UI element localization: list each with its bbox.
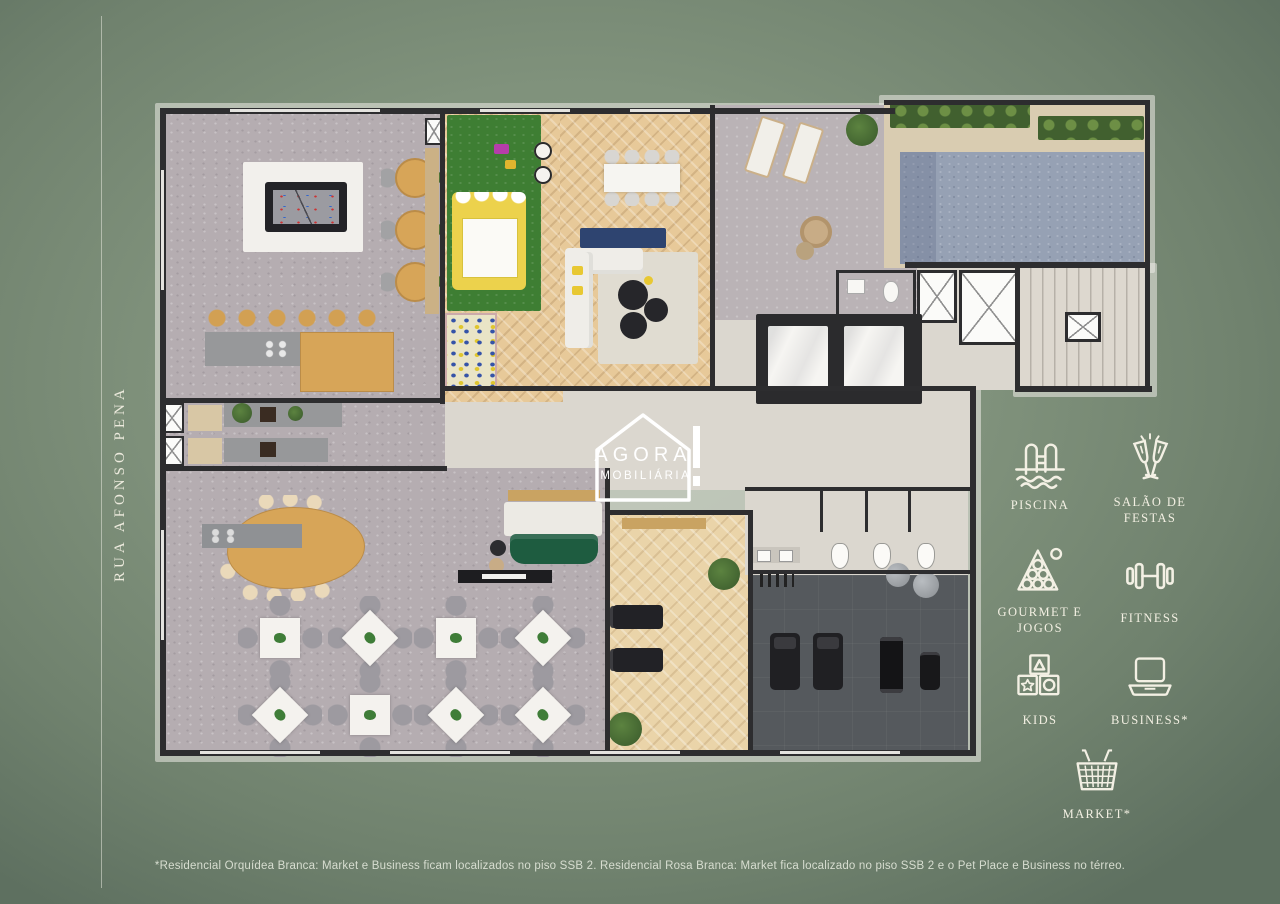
party-table-set bbox=[414, 596, 498, 680]
pillow bbox=[572, 266, 583, 275]
exercise-bike bbox=[920, 652, 940, 690]
amenity-label: GOURMET E JOGOS bbox=[988, 604, 1092, 637]
wall bbox=[608, 510, 753, 515]
weight-rack bbox=[760, 572, 794, 587]
wall bbox=[884, 100, 1150, 105]
disclaimer-text: *Residencial Orquídea Branca: Market e B… bbox=[0, 860, 1280, 872]
laptop-icon bbox=[1122, 650, 1178, 706]
basket-icon bbox=[1069, 744, 1125, 800]
burners bbox=[208, 529, 238, 543]
exercise-ball bbox=[913, 572, 939, 598]
amenity-label: KIDS bbox=[988, 712, 1092, 728]
media-console bbox=[580, 228, 666, 248]
pillow bbox=[572, 286, 583, 295]
amenity-label: PISCINA bbox=[988, 497, 1092, 513]
support-counter bbox=[224, 438, 328, 462]
party-table bbox=[252, 687, 309, 744]
wc-sink bbox=[847, 279, 865, 294]
bar-table bbox=[300, 332, 394, 392]
window bbox=[161, 530, 164, 640]
plant bbox=[232, 403, 252, 423]
amenity-piscina: PISCINA bbox=[988, 435, 1092, 513]
kids-playhouse bbox=[452, 192, 526, 290]
stall-wall bbox=[820, 490, 823, 532]
wall bbox=[1015, 386, 1152, 392]
party-table bbox=[342, 610, 399, 667]
deck-pouf bbox=[796, 242, 814, 260]
amenity-fitness: FITNESS bbox=[1098, 548, 1202, 626]
massage-chair bbox=[613, 648, 663, 672]
street-name-label: RUA AFONSO PENA bbox=[112, 282, 129, 582]
party-table-set bbox=[238, 673, 322, 757]
billiards-felt bbox=[273, 190, 339, 224]
wc-room bbox=[836, 270, 916, 318]
cooktop bbox=[263, 340, 289, 358]
pouf bbox=[620, 312, 647, 339]
pool-shallow-ledge bbox=[900, 152, 936, 264]
treadmill bbox=[770, 633, 800, 690]
party-table-set bbox=[501, 673, 585, 757]
toy bbox=[505, 160, 516, 169]
salon-plant bbox=[608, 712, 642, 746]
amenity-market: MARKET* bbox=[1045, 744, 1149, 822]
elevator-cab bbox=[768, 326, 828, 390]
window bbox=[780, 751, 900, 754]
window bbox=[590, 751, 680, 754]
amenity-label: FITNESS bbox=[1098, 610, 1202, 626]
bar-counter bbox=[205, 332, 300, 366]
stairs-shaft bbox=[1065, 312, 1101, 342]
amenity-label: BUSINESS* bbox=[1098, 712, 1202, 728]
weight-machine bbox=[880, 637, 903, 693]
pool-icon bbox=[1012, 435, 1068, 491]
toy-blocks-icon bbox=[1012, 650, 1068, 706]
billiards-icon bbox=[1012, 542, 1068, 598]
sink bbox=[757, 550, 771, 562]
wall bbox=[443, 386, 975, 391]
stall-wall bbox=[865, 490, 868, 532]
toy bbox=[644, 276, 653, 285]
party-table-set bbox=[238, 596, 322, 680]
billiards-table bbox=[265, 182, 347, 232]
swimming-pool bbox=[900, 152, 1144, 264]
amenity-salao-de-festas: SALÃO DE FESTAS bbox=[1098, 432, 1202, 527]
wall bbox=[745, 487, 970, 491]
bin bbox=[260, 442, 276, 457]
salon-bench bbox=[622, 518, 706, 529]
party-table-set bbox=[328, 673, 412, 757]
wc-toilet bbox=[883, 281, 899, 303]
kids-dining-table bbox=[604, 164, 680, 192]
toy bbox=[494, 144, 509, 154]
wall bbox=[1145, 100, 1150, 392]
tv-console bbox=[458, 570, 552, 583]
party-table bbox=[436, 618, 476, 658]
massage-chair bbox=[613, 605, 663, 629]
window bbox=[760, 109, 860, 112]
window bbox=[630, 109, 690, 112]
sink-counter bbox=[752, 547, 800, 563]
party-table bbox=[515, 687, 572, 744]
plant bbox=[288, 406, 303, 421]
sink bbox=[779, 550, 793, 562]
wall bbox=[710, 105, 715, 390]
salon-plant bbox=[708, 558, 740, 590]
wall bbox=[1015, 268, 1020, 390]
party-table-set bbox=[328, 596, 412, 680]
party-table bbox=[350, 695, 390, 735]
pouf bbox=[644, 298, 668, 322]
toilet bbox=[917, 543, 935, 569]
window bbox=[200, 751, 320, 754]
dumbbell-icon bbox=[1122, 548, 1178, 604]
amenity-kids: KIDS bbox=[988, 650, 1092, 728]
wall bbox=[163, 398, 445, 403]
street-boundary-line bbox=[101, 16, 102, 888]
wall bbox=[440, 108, 445, 404]
party-table bbox=[260, 618, 300, 658]
window bbox=[230, 109, 380, 112]
wall bbox=[905, 262, 1150, 268]
amenity-business: BUSINESS* bbox=[1098, 650, 1202, 728]
ball-pit bbox=[445, 313, 497, 391]
window bbox=[480, 109, 570, 112]
logo-name: AGORA bbox=[590, 444, 696, 467]
floorplan-marketing-page: { "street": { "label": "RUA AFONSO PENA"… bbox=[0, 0, 1280, 904]
wall bbox=[748, 513, 753, 754]
logo-tagline: IMOBILIÁRIA bbox=[590, 470, 696, 482]
gourmet-dining-set bbox=[215, 495, 375, 601]
party-table bbox=[515, 610, 572, 667]
kids-pouf bbox=[534, 142, 552, 160]
amenity-gourmet-e-jogos: GOURMET E JOGOS bbox=[988, 542, 1092, 637]
agora-logo: AGORA IMOBILIÁRIA bbox=[583, 406, 705, 508]
stall-wall bbox=[908, 490, 911, 532]
gourmet-table bbox=[227, 507, 365, 589]
kids-dining-set bbox=[592, 150, 692, 206]
gourmet-cooktop-counter bbox=[202, 524, 302, 548]
toilet bbox=[873, 543, 891, 569]
green-sofa bbox=[510, 534, 598, 564]
playhouse-mat bbox=[462, 218, 518, 278]
mat bbox=[188, 438, 222, 464]
party-table-set bbox=[414, 673, 498, 757]
mat bbox=[188, 405, 222, 431]
party-table bbox=[428, 687, 485, 744]
exercise-ball bbox=[886, 563, 910, 587]
elevator-cab bbox=[844, 326, 904, 390]
bar-set bbox=[205, 308, 405, 392]
window bbox=[161, 170, 164, 290]
hedge-strip bbox=[890, 102, 1030, 128]
toilet bbox=[831, 543, 849, 569]
party-table-set bbox=[501, 596, 585, 680]
duct-shaft bbox=[917, 270, 957, 323]
hedge-strip-2 bbox=[1038, 116, 1144, 140]
amenity-label: MARKET* bbox=[1045, 806, 1149, 822]
tv-screen bbox=[482, 574, 526, 579]
treadmill bbox=[813, 633, 843, 690]
outer-wall-right bbox=[970, 386, 976, 756]
amenity-label: SALÃO DE FESTAS bbox=[1098, 494, 1202, 527]
wall bbox=[748, 570, 970, 574]
planter-strip bbox=[425, 148, 439, 314]
deck-plant bbox=[846, 114, 878, 146]
duct-shaft bbox=[959, 270, 1019, 345]
window bbox=[390, 751, 510, 754]
champagne-icon bbox=[1122, 432, 1178, 488]
pouf bbox=[618, 280, 648, 310]
bin bbox=[260, 407, 276, 422]
kids-pouf bbox=[534, 166, 552, 184]
wall bbox=[163, 466, 447, 471]
side-table bbox=[490, 540, 506, 556]
